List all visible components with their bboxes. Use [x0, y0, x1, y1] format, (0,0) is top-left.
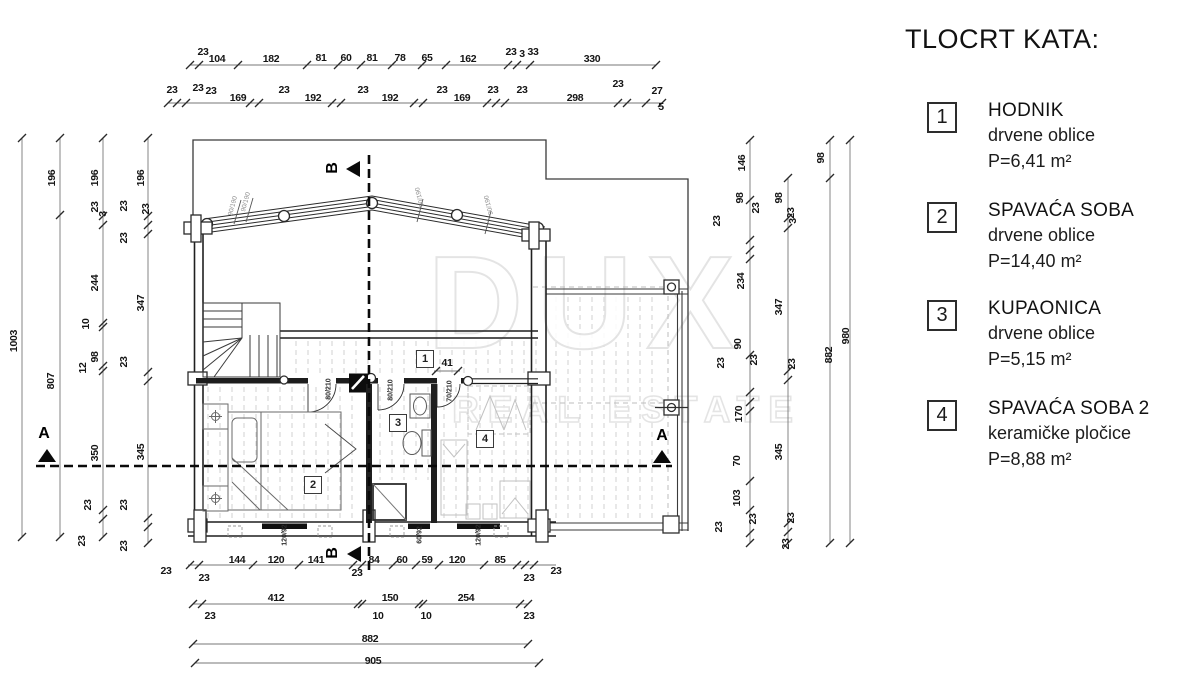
dimension-label: 234 [735, 273, 747, 290]
dimension-label: 23 [166, 84, 177, 96]
legend-room-area: P=8,88 m² [988, 446, 1197, 472]
dimension-label: 120/92 [476, 524, 483, 545]
sink [410, 394, 430, 418]
floorplan-page: DUX REAL ESTATE [0, 0, 1200, 684]
dimension-label: 192 [305, 92, 322, 104]
dimension-label: 98 [773, 192, 785, 203]
dimension-label: 347 [773, 299, 785, 316]
dimension-label: 23 [786, 358, 798, 369]
watermark-text-realestate: REAL ESTATE [452, 389, 802, 430]
dimension-label: 347 [135, 295, 147, 312]
dimension-label: 23 [436, 84, 447, 96]
legend-item-3: 3 KUPAONICA drvene oblice P=5,15 m² [905, 298, 1197, 372]
dimension-label: 170 [733, 406, 745, 423]
legend-number-3: 3 [927, 300, 957, 331]
legend-title: TLOCRT KATA: [905, 24, 1197, 55]
dimension-label: 85 [494, 554, 505, 566]
legend-room-finish: drvene oblice [988, 122, 1197, 148]
dimension-label: 1003 [8, 330, 20, 352]
dimension-label: 23 [711, 215, 723, 226]
dimension-label: 23 [278, 84, 289, 96]
dimension-label: 10 [420, 610, 431, 622]
dimension-label: 3 [787, 218, 799, 224]
dimension-label: 882 [362, 633, 379, 645]
dimension-label: 192 [382, 92, 399, 104]
section-arrow-b-bottom [347, 546, 361, 562]
log-joint-circle [280, 376, 288, 384]
bathroom-fixtures [373, 394, 431, 520]
dimension-label: 33 [527, 46, 538, 58]
watermark-text-dux: DUX [428, 229, 749, 376]
dimension-label: 144 [229, 554, 246, 566]
legend: TLOCRT KATA: 1 HODNIK drvene oblice P=6,… [905, 24, 1197, 55]
dimension-label: 169 [454, 92, 471, 104]
section-arrow-a-left [38, 449, 56, 462]
dimension-label: 10 [372, 610, 383, 622]
dimension-label: 70 [731, 455, 743, 466]
nightstands [203, 404, 228, 511]
dimension-label: 23 [351, 567, 362, 579]
room-number-box-4: 4 [476, 430, 494, 448]
dimension-label: 980 [840, 328, 852, 345]
legend-room-area: P=5,15 m² [988, 346, 1197, 372]
dimension-label: 23 [205, 85, 216, 97]
dimension-label: 345 [135, 444, 147, 461]
dimension-label: 23 [713, 521, 725, 532]
dimension-label: 3 [519, 48, 525, 60]
dimension-label: 103 [731, 490, 743, 507]
dimension-label: 330 [584, 53, 601, 65]
legend-item-1: 1 HODNIK drvene oblice P=6,41 m² [905, 100, 1197, 174]
staircase [203, 303, 280, 377]
section-label: A [38, 425, 50, 443]
window-bars [262, 524, 500, 530]
dimension-label: 41 [441, 357, 452, 369]
toilet [403, 430, 431, 456]
dimension-label: 81 [315, 52, 326, 64]
dimension-label: 104 [209, 53, 226, 65]
section-label: B [324, 547, 342, 559]
dimension-label: 23 [118, 499, 130, 510]
dimension-label: 23 [118, 540, 130, 551]
dimension-label: 23 [612, 78, 623, 90]
dimension-label: 10 [80, 318, 92, 329]
dimension-label: 196 [135, 170, 147, 187]
dimension-label: 23 [523, 610, 534, 622]
dimension-label: 70/210 [447, 380, 454, 401]
dimension-label: 98 [734, 192, 746, 203]
legend-room-name: SPAVAĆA SOBA 2 [988, 398, 1197, 420]
dimension-label: 78 [394, 52, 405, 64]
legend-room-name: KUPAONICA [988, 298, 1197, 320]
dimension-label: 98 [815, 152, 827, 163]
dimension-label: 23 [118, 200, 130, 211]
interior-wall-hall [196, 378, 472, 384]
dimension-label: 23 [76, 535, 88, 546]
dimension-label: 23 [715, 357, 727, 368]
legend-number-4: 4 [927, 400, 957, 431]
log-joint-circle [464, 377, 473, 386]
dimension-label: 120 [268, 554, 285, 566]
legend-item-4: 4 SPAVAĆA SOBA 2 keramičke pločice P=8,8… [905, 398, 1197, 472]
dimension-label: 807 [45, 373, 57, 390]
dimension-label: 23 [516, 84, 527, 96]
dimension-label: 23 [160, 565, 171, 577]
dimension-label: 23 [204, 610, 215, 622]
dimension-label: 80/210 [326, 378, 333, 399]
chimney [349, 374, 368, 393]
dimension-label: 3 [97, 211, 109, 217]
dimension-label: 162 [460, 53, 477, 65]
section-arrow-b-top [346, 161, 360, 177]
legend-room-finish: drvene oblice [988, 222, 1197, 248]
dimension-label: 23 [523, 572, 534, 584]
dimension-label: 23 [550, 565, 561, 577]
dimension-label: 65 [421, 52, 432, 64]
dimension-label: 298 [567, 92, 584, 104]
bedroom2-furniture [203, 404, 356, 511]
dimension-label: 350 [89, 445, 101, 462]
dimension-label: 23 [192, 82, 203, 94]
dimension-label: 23 [748, 354, 760, 365]
dimension-label: 23 [747, 513, 759, 524]
room-number-box-3: 3 [389, 414, 407, 432]
dimension-label: 60 [396, 554, 407, 566]
dimension-label: 5 [658, 101, 664, 113]
dimension-label: 23 [357, 84, 368, 96]
room-number-box-2: 2 [304, 476, 322, 494]
dimension-label: 23 [487, 84, 498, 96]
legend-room-finish: drvene oblice [988, 320, 1197, 346]
dimension-label: 146 [736, 155, 748, 172]
dimension-label: 81 [366, 52, 377, 64]
dimension-label: 59 [421, 554, 432, 566]
dimension-label: 60/92 [417, 526, 424, 544]
dimension-label: 120 [449, 554, 466, 566]
dimension-label: 98 [89, 351, 101, 362]
legend-room-name: HODNIK [988, 100, 1197, 122]
dimension-label: 23 [750, 202, 762, 213]
dimension-label: 196 [89, 170, 101, 187]
legend-room-finish: keramičke pločice [988, 420, 1197, 446]
dimension-label: 244 [89, 275, 101, 292]
legend-room-area: P=14,40 m² [988, 248, 1197, 274]
dimension-label: 80/210 [388, 379, 395, 400]
dimension-label: 882 [823, 347, 835, 364]
legend-number-2: 2 [927, 202, 957, 233]
dimension-label: 23 [82, 499, 94, 510]
dimension-label: 12 [77, 362, 89, 373]
dimension-label: 196 [46, 170, 58, 187]
dimension-label: 84 [368, 554, 379, 566]
legend-item-2: 2 SPAVAĆA SOBA drvene oblice P=14,40 m² [905, 200, 1197, 274]
dimension-label: 60 [340, 52, 351, 64]
dimension-label: 141 [308, 554, 325, 566]
dimension-label: 23 [118, 356, 130, 367]
dimension-label: 150 [382, 592, 399, 604]
dimension-label: 23 [197, 46, 208, 58]
dimension-label: 23 [780, 538, 792, 549]
dimension-label: 23 [198, 572, 209, 584]
dimension-label: 23 [118, 232, 130, 243]
dimension-label: 23 [140, 203, 152, 214]
dimension-label: 120/92 [282, 524, 289, 545]
watermark: DUX REAL ESTATE [428, 229, 802, 430]
dimension-label: 27 [651, 85, 662, 97]
room-number-box-1: 1 [416, 350, 434, 368]
dimension-label: 345 [773, 444, 785, 461]
dimension-label: 23 [785, 512, 797, 523]
dimension-label: 254 [458, 592, 475, 604]
dimension-label: 905 [365, 655, 382, 667]
section-label: B [324, 162, 342, 174]
section-label: A [656, 427, 668, 445]
dimension-label: 412 [268, 592, 285, 604]
dimension-label: 90 [732, 338, 744, 349]
legend-room-area: P=6,41 m² [988, 148, 1197, 174]
dimension-label: 182 [263, 53, 280, 65]
legend-number-1: 1 [927, 102, 957, 133]
dimension-label: 169 [230, 92, 247, 104]
legend-room-name: SPAVAĆA SOBA [988, 200, 1197, 222]
dimension-label: 23 [505, 46, 516, 58]
